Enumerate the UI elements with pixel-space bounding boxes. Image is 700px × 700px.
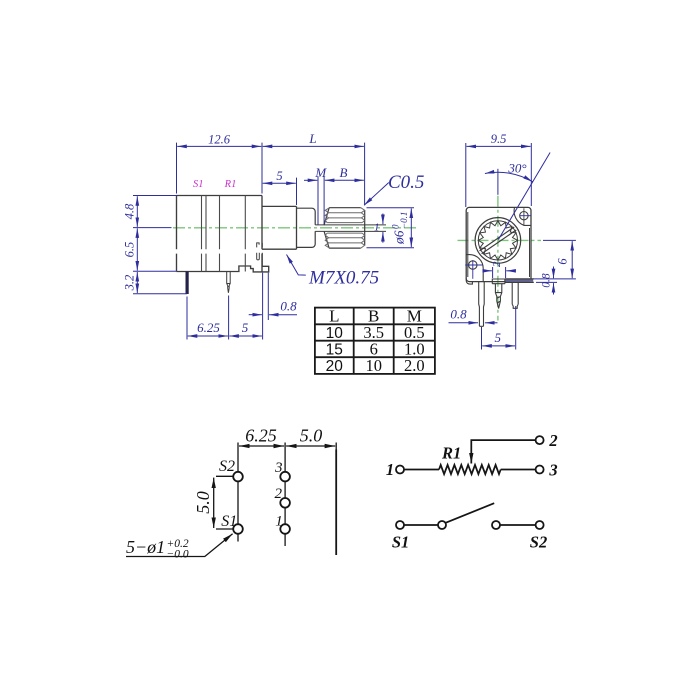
svg-text:2.0: 2.0 [404,356,425,375]
svg-text:M7X0.75: M7X0.75 [308,268,379,289]
svg-text:S1: S1 [392,533,409,552]
svg-text:S2: S2 [530,533,547,552]
svg-text:2: 2 [548,431,557,450]
svg-text:5.0: 5.0 [193,491,213,514]
svg-text:12.6: 12.6 [208,132,231,146]
svg-text:6.25: 6.25 [245,426,277,446]
svg-text:M: M [314,165,327,180]
svg-text:1: 1 [386,460,394,479]
svg-text:L: L [329,307,339,326]
svg-text:3: 3 [274,460,283,476]
svg-text:0.8: 0.8 [280,299,297,314]
svg-text:2: 2 [274,486,282,502]
svg-text:6.25: 6.25 [197,320,220,335]
svg-text:R1: R1 [441,444,461,463]
svg-text:5: 5 [494,330,501,345]
svg-text:5.0: 5.0 [300,426,323,446]
svg-text:L: L [308,131,316,146]
svg-text:6: 6 [556,258,570,265]
svg-text:5: 5 [242,320,249,335]
svg-text:R1: R1 [224,179,237,190]
svg-text:3: 3 [548,461,557,480]
svg-text:9.5: 9.5 [491,132,507,146]
svg-text:20: 20 [326,358,344,375]
svg-text:0.8: 0.8 [541,273,553,288]
svg-text:−0.0: −0.0 [167,549,189,561]
svg-text:10: 10 [365,356,382,375]
svg-text:1: 1 [374,222,380,234]
svg-text:3.2: 3.2 [123,275,137,292]
svg-text:6.5: 6.5 [123,242,137,258]
svg-text:5: 5 [276,169,282,183]
svg-text:ø6: ø6 [392,230,407,245]
svg-text:4.8: 4.8 [123,203,137,219]
svg-text:1: 1 [275,514,283,530]
svg-text:S2: S2 [219,458,235,475]
svg-text:−0.1: −0.1 [399,212,409,229]
svg-text:0.8: 0.8 [450,307,467,322]
svg-text:S1: S1 [193,179,204,190]
svg-text:C0.5: C0.5 [388,172,424,193]
svg-text:S1: S1 [221,513,237,530]
svg-text:15: 15 [326,341,343,358]
svg-text:5−ø1: 5−ø1 [126,537,165,557]
svg-text:B: B [340,165,348,180]
svg-text:2: 2 [491,261,503,267]
svg-text:30°: 30° [507,161,526,176]
svg-text:10: 10 [326,325,344,342]
